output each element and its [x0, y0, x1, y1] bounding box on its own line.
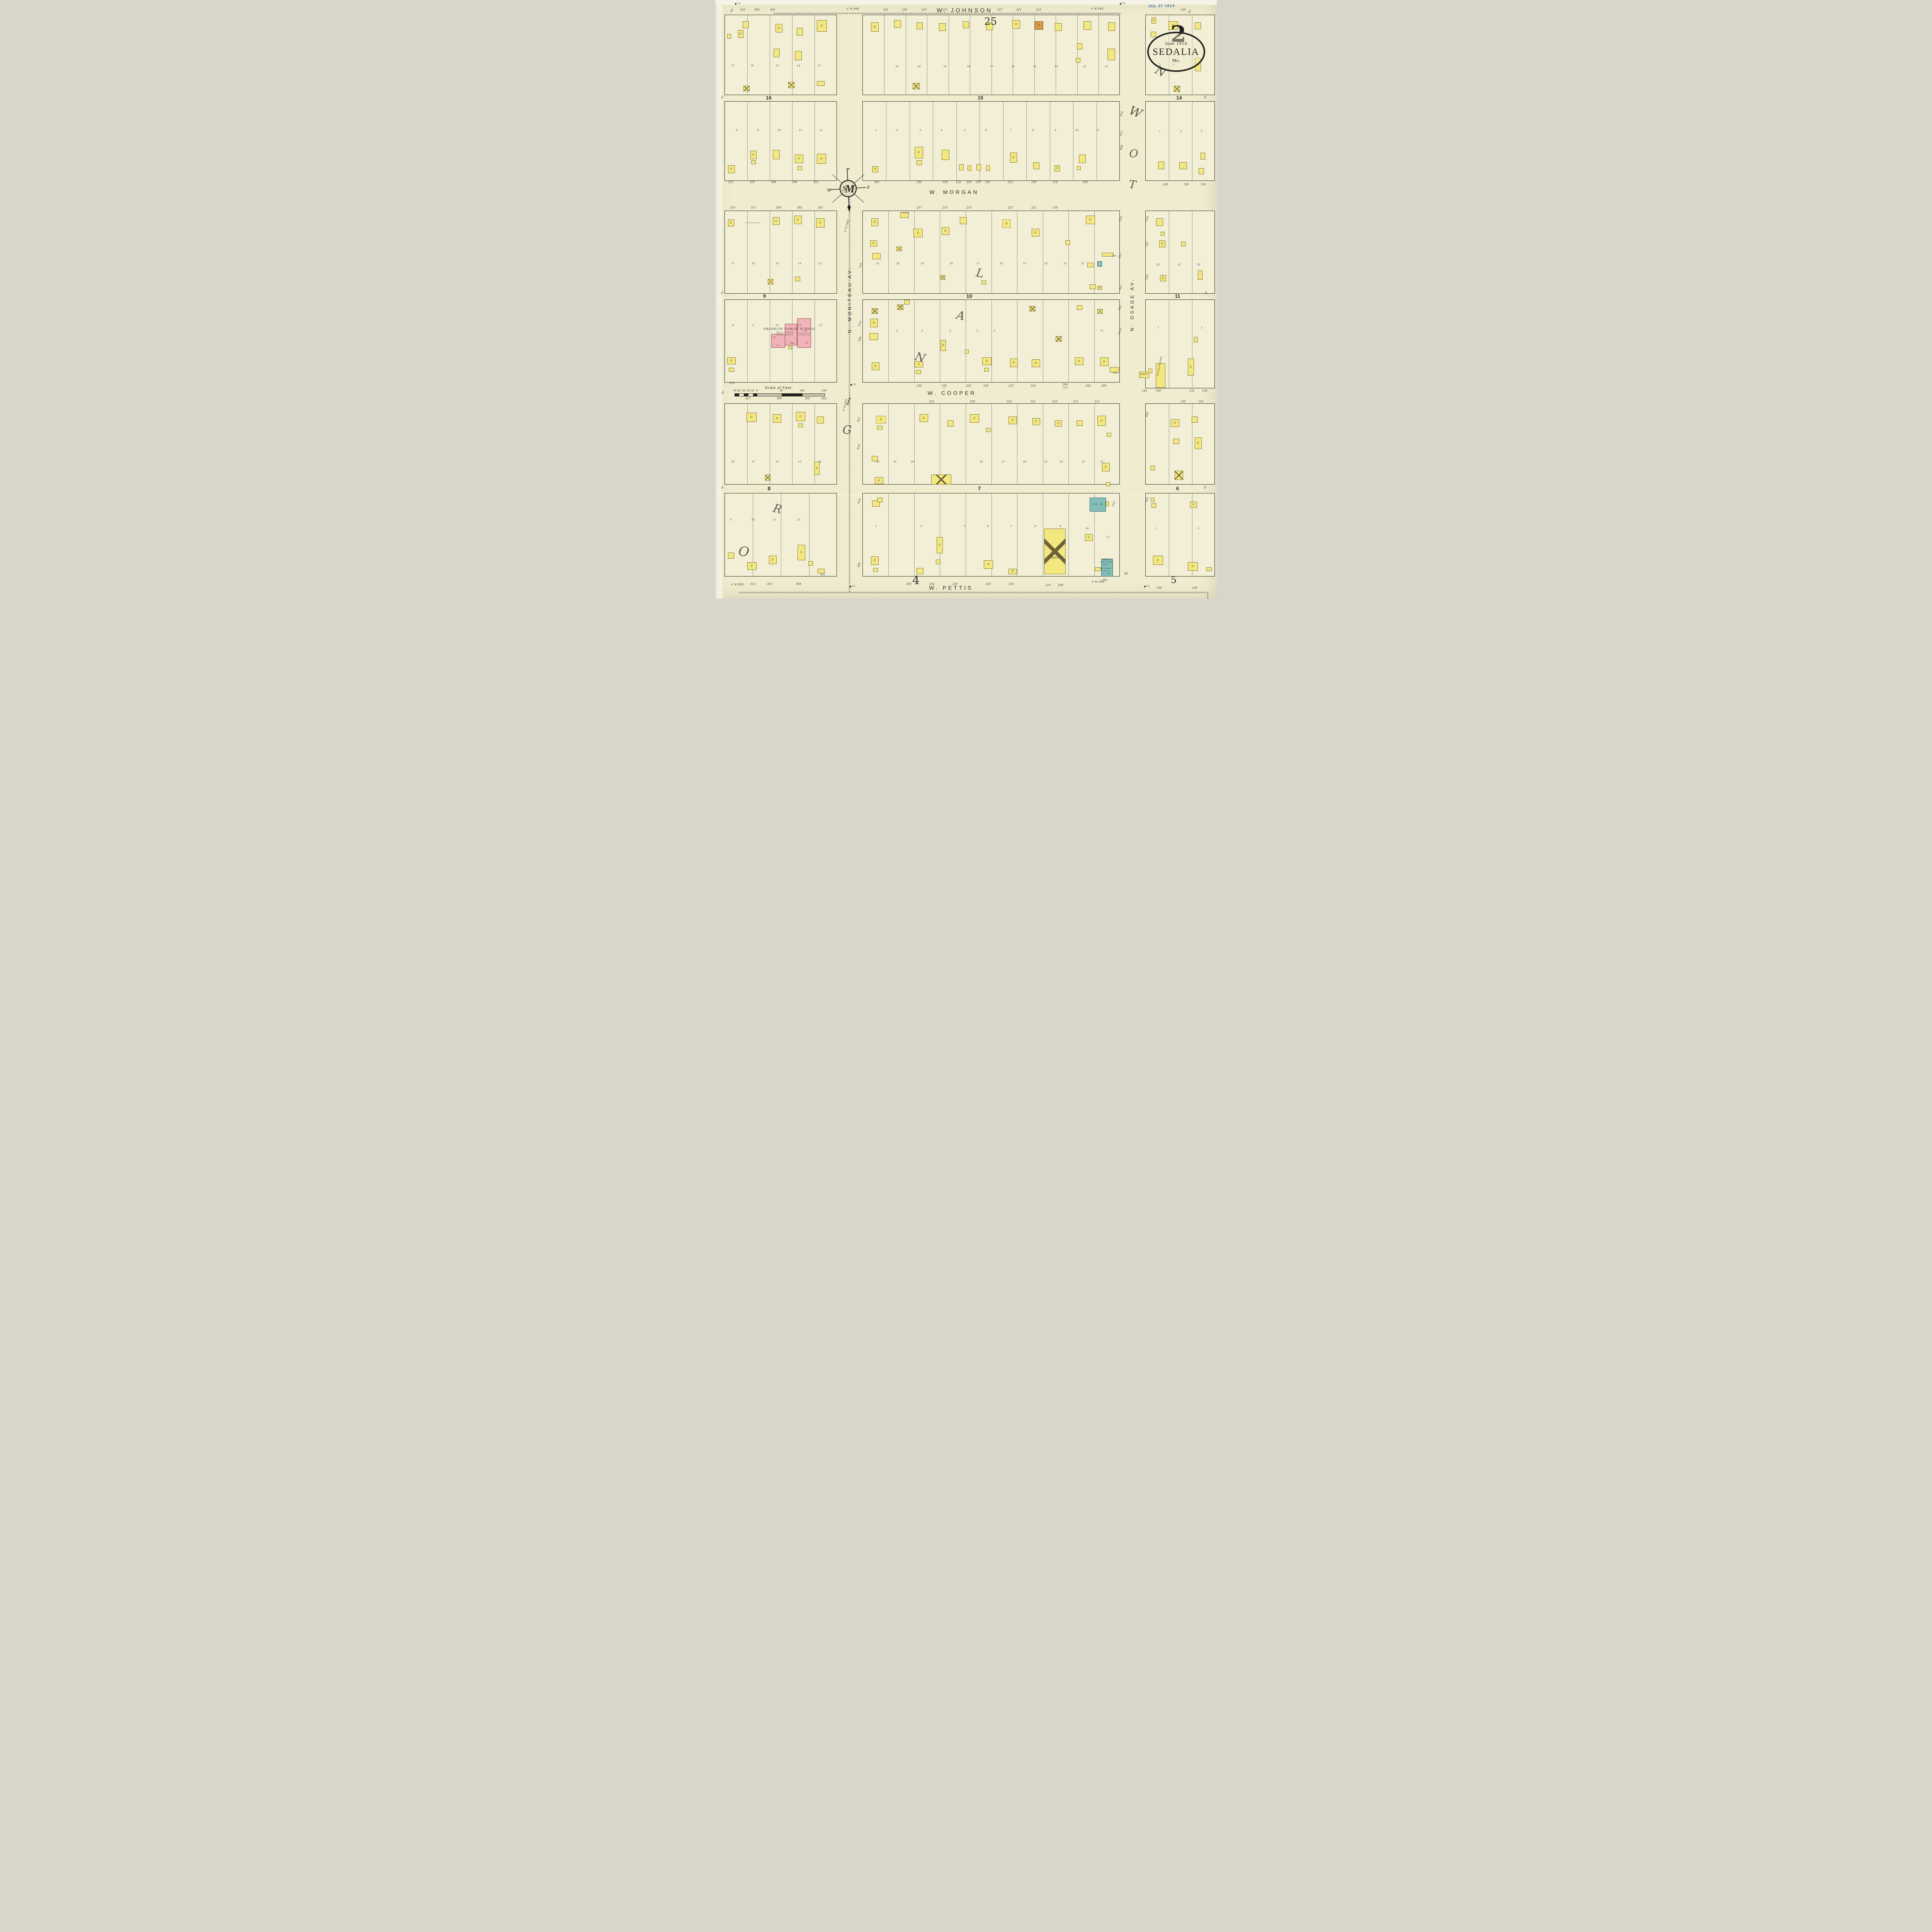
building-use-label: D — [1056, 167, 1058, 170]
building — [1151, 498, 1155, 502]
building — [728, 553, 734, 559]
hydrant-dot — [1120, 3, 1121, 5]
house-number: 239 — [902, 9, 907, 12]
school-label: 2B — [804, 331, 807, 333]
sanborn-map-sheet: DDDDDDDDDDDDDDDDDDDDDDDDDDDDDDDDDDDDDDDD… — [716, 0, 1217, 599]
lot-line — [992, 300, 992, 382]
building: D — [940, 340, 946, 351]
building-use-label: D — [873, 322, 875, 325]
building: D — [982, 357, 992, 365]
th-marker: T.H. — [852, 586, 855, 588]
lot-number: 5 — [964, 525, 965, 528]
poi-label: Lunch — [1140, 373, 1147, 376]
school-label: FRANKLIN PUBLIC SCHOOL — [764, 327, 816, 330]
block-number: 14 — [1176, 95, 1182, 100]
house-number: 304 — [796, 583, 801, 586]
lot-number: 7 — [1010, 129, 1012, 132]
house-number: 237 — [917, 207, 922, 209]
block-number: 6 — [1176, 486, 1179, 491]
building: D — [871, 218, 878, 226]
lot-line — [1043, 404, 1043, 484]
street-label: N. MONITEAU AV. — [847, 266, 852, 333]
lot-number: 16 — [1011, 65, 1014, 68]
house-number: 309 — [776, 207, 781, 209]
house-number: (210) — [1063, 387, 1068, 389]
water-pipe-line — [739, 592, 1206, 593]
house-number: 206 — [1083, 181, 1088, 184]
lot-line — [888, 404, 889, 484]
lot-line — [940, 404, 940, 484]
building: D — [747, 562, 757, 570]
building-use-label: D — [740, 33, 742, 36]
building — [1151, 503, 1156, 508]
building-use-label: D — [1088, 536, 1090, 539]
building — [817, 81, 825, 86]
building-use-label: D — [751, 565, 753, 568]
building-use-label: D — [1153, 19, 1155, 22]
poi-label: SALE — [1051, 557, 1059, 560]
house-number: 618 — [1119, 111, 1124, 117]
building: D — [796, 412, 805, 421]
building: D — [1100, 357, 1109, 366]
lot-line — [914, 211, 915, 293]
lot-number: 1 — [875, 129, 876, 132]
lot-number: 3 — [1197, 527, 1199, 530]
building — [1158, 162, 1164, 169]
poi-label: (C.B.) — [1103, 565, 1108, 566]
house-number: 229 — [970, 401, 975, 403]
house-number: 232 — [942, 385, 947, 388]
scale-segment — [782, 394, 803, 396]
block-outline — [862, 101, 1120, 181]
dimension-label: 60' — [730, 8, 734, 12]
building — [1106, 482, 1111, 486]
building: D — [1012, 20, 1020, 29]
lot-number: 17 — [1002, 461, 1005, 463]
house-number: 128 — [1202, 390, 1207, 393]
lot-number: 14 — [798, 262, 801, 265]
building — [1087, 263, 1094, 267]
building — [1056, 336, 1062, 342]
house-number: 204 — [1063, 384, 1068, 386]
lot-number: 14 — [1060, 461, 1063, 463]
building: D — [795, 155, 803, 163]
lot-number: 20 — [917, 65, 920, 68]
scale-tick: 10 — [751, 389, 754, 392]
building — [1097, 309, 1103, 314]
hydrant-dot — [735, 3, 736, 5]
building-use-label: D — [821, 25, 823, 27]
street-label: W. COOPER — [928, 390, 976, 396]
lot-number: 20 — [896, 262, 899, 265]
lot-number: 10 — [1085, 527, 1088, 530]
building — [872, 253, 881, 259]
house-number: 219 — [1052, 401, 1057, 403]
lot-line — [992, 404, 992, 484]
building: D — [814, 462, 820, 475]
lot-number: 21 — [1177, 264, 1180, 266]
lot-line — [815, 211, 815, 293]
building-use-label: D — [874, 365, 876, 368]
lot-number: 15 — [798, 461, 801, 463]
lot-line — [1017, 404, 1017, 484]
hydrant-dot — [850, 586, 851, 587]
building — [1195, 22, 1201, 29]
lot-number: 9 — [1060, 525, 1061, 528]
building-use-label: D — [987, 563, 989, 566]
scale-tick: 30 — [742, 389, 745, 392]
building: D — [769, 556, 777, 564]
building — [1198, 270, 1202, 280]
lot-number: 21 — [876, 262, 879, 265]
building — [936, 560, 940, 564]
poi-label: 25' — [1107, 573, 1110, 575]
building — [1179, 162, 1187, 169]
lot-number: 13 — [817, 65, 820, 67]
building — [798, 166, 802, 170]
school-label: 2B — [772, 337, 776, 339]
lot-number: 3 — [919, 129, 921, 132]
house-number: 136 — [1192, 587, 1197, 590]
lot-line — [1043, 493, 1043, 576]
block-number: 10 — [966, 293, 973, 299]
block-number: 9 — [763, 294, 766, 299]
building: D — [1055, 420, 1062, 427]
lot-line — [914, 404, 915, 484]
building: D — [872, 362, 879, 370]
house-number: 210 — [1046, 584, 1051, 587]
building: D — [1188, 359, 1194, 376]
lot-number: 12 — [1081, 262, 1084, 265]
house-number: 235 — [942, 207, 947, 209]
house-number: 139 — [1180, 401, 1185, 403]
lot-line — [1017, 493, 1017, 576]
building — [1029, 306, 1036, 311]
building-use-label: D — [1161, 243, 1163, 245]
house-number: 219 — [1053, 207, 1058, 209]
building-use-label: D — [1197, 442, 1199, 445]
house-number: 136 — [1201, 184, 1206, 186]
scale-tick: 150 — [821, 389, 826, 392]
lot-line — [966, 404, 966, 484]
lot-number: 3 — [920, 525, 922, 528]
pencil-letter: T — [1128, 179, 1136, 190]
house-number: 225 — [1016, 9, 1021, 12]
lot-line — [956, 102, 957, 180]
th-marker: T.H. — [853, 384, 856, 386]
lot-number: 18 — [731, 461, 734, 463]
block-outline — [724, 101, 837, 181]
house-number: 223 — [1007, 401, 1012, 403]
building: D — [1032, 359, 1040, 367]
building — [1055, 23, 1062, 31]
building: D — [1002, 219, 1011, 228]
lot-number: 18 — [967, 65, 970, 68]
building — [917, 568, 923, 574]
house-number: 140 — [1163, 184, 1168, 186]
building: D — [1032, 229, 1039, 236]
title-oval: June 1914 SEDALIA Mo. — [1147, 32, 1205, 72]
building — [976, 164, 981, 170]
lot-number: 17 — [976, 262, 980, 265]
lot-line — [815, 15, 815, 95]
school-label: 35' — [791, 343, 795, 345]
lot-number: 13 — [818, 262, 821, 265]
building — [968, 165, 971, 171]
building-use-label: D — [1103, 361, 1105, 363]
lot-number: 8 — [736, 129, 737, 132]
lot-number: 12 — [797, 519, 800, 521]
building — [797, 335, 811, 348]
street-label: W. PETTIS — [929, 585, 973, 590]
block-number: 11 — [1175, 294, 1180, 299]
pencil-letter: O — [737, 544, 750, 559]
lot-number: 17 — [731, 262, 734, 265]
lot-number: 12 — [819, 129, 822, 132]
building — [1077, 305, 1082, 310]
lot-number: 15 — [776, 65, 779, 67]
lot-line — [927, 15, 927, 95]
house-number: 218 — [1053, 181, 1058, 184]
lot-line — [888, 211, 889, 293]
scale-segment — [748, 394, 753, 396]
building-use-label: D — [730, 360, 732, 362]
building: D — [1171, 419, 1179, 427]
house-number: 227 — [997, 9, 1002, 12]
building-use-label: D — [752, 154, 754, 156]
building — [877, 426, 883, 430]
house-number: 319 — [740, 9, 745, 12]
building — [960, 217, 967, 224]
lot-line — [770, 15, 770, 95]
title-city: SEDALIA — [1153, 47, 1199, 58]
building-use-label: D — [1057, 422, 1059, 425]
lot-number: 2 — [896, 330, 898, 332]
lot-line — [1068, 404, 1069, 484]
house-number: 140 — [1156, 390, 1161, 393]
building-use-label: D — [1089, 219, 1091, 221]
building-use-label: D — [923, 417, 925, 420]
block-outline — [862, 211, 1120, 294]
building — [1077, 166, 1081, 170]
lot-number: 22 — [876, 461, 879, 463]
building: D — [871, 556, 879, 565]
lot-number: 13 — [1083, 65, 1086, 68]
house-number: 238 — [906, 583, 911, 586]
building — [774, 49, 780, 57]
poi-label: PRINTING — [1103, 559, 1111, 561]
building-use-label: D — [1015, 23, 1017, 26]
lot-number: 12 — [1105, 65, 1108, 68]
lot-number: 16 — [750, 65, 753, 67]
dimension-label: 20' — [1203, 485, 1207, 490]
house-number: 221 — [1031, 207, 1036, 209]
house-number: 200 — [1101, 385, 1106, 388]
building — [797, 28, 803, 36]
building-use-label: D — [1078, 360, 1080, 363]
lot-number: 16 — [776, 461, 779, 463]
lot-line — [966, 493, 966, 576]
building-use-label: D — [1012, 156, 1014, 159]
house-number: 144 — [1156, 587, 1162, 590]
building-use-label: D — [776, 417, 778, 420]
building — [917, 22, 923, 29]
block-number: 16 — [766, 95, 771, 100]
lot-line — [1099, 15, 1099, 95]
building: D — [738, 30, 743, 38]
house-number: 510 — [858, 321, 862, 327]
house-number: 218 — [1009, 583, 1014, 586]
building — [798, 423, 803, 427]
building-use-label: D — [986, 360, 988, 363]
building-use-label: D — [944, 230, 946, 233]
block-number: 7 — [978, 486, 981, 491]
lot-line — [792, 102, 793, 180]
building-use-label: D — [1105, 466, 1107, 469]
pipe-label: 4" W. PIPE — [731, 584, 743, 586]
building — [959, 164, 964, 170]
house-number: 301 — [818, 207, 823, 209]
paper-edge-left — [716, 0, 723, 599]
building-use-label: D — [1100, 420, 1102, 422]
lot-line — [1192, 404, 1192, 484]
paper-edge-top — [716, 0, 1217, 5]
lot-number: 10 — [751, 519, 754, 521]
house-number: 609 — [1119, 145, 1124, 151]
house-number: 215 — [1073, 401, 1078, 403]
lot-line — [886, 102, 886, 180]
building — [1181, 241, 1186, 246]
lot-line — [770, 300, 770, 382]
dimension-label: 20' — [1203, 95, 1207, 99]
poi-label: D. — [1100, 503, 1103, 506]
pipe-label: 4" W. PIPE — [1092, 581, 1104, 583]
lot-number: 16 — [1000, 262, 1003, 265]
building: D — [1151, 17, 1156, 24]
lot-number: 9 — [1054, 129, 1056, 132]
lot-number: 11 — [1096, 129, 1099, 132]
lot-number: 15 — [1023, 262, 1026, 265]
building — [795, 51, 802, 60]
lot-number: 1 — [1159, 130, 1160, 133]
building-use-label: D — [1157, 559, 1159, 562]
block-outline — [862, 403, 1120, 485]
lot-line — [1068, 300, 1069, 382]
lot-line — [1003, 102, 1003, 180]
building: D — [1032, 418, 1040, 425]
building — [768, 279, 773, 284]
building: D — [776, 24, 782, 32]
building-use-label: D — [750, 416, 752, 419]
lot-line — [1169, 211, 1169, 293]
building-use-label: D — [1034, 231, 1036, 234]
house-number: 132 — [1189, 390, 1194, 393]
poi-label: Gro. — [820, 574, 825, 576]
building-use-label: D — [973, 417, 975, 420]
building — [1150, 466, 1155, 470]
date-stamp: JUL 27 1914 — [1148, 4, 1175, 9]
building — [729, 368, 734, 372]
house-number: 224 — [983, 385, 988, 388]
lot-line — [1192, 102, 1192, 180]
scale-tick: 0 — [756, 389, 758, 392]
building-use-label: D — [874, 26, 876, 29]
building-use-label: D — [1035, 362, 1037, 365]
building-use-label: D — [1162, 277, 1164, 280]
building — [1108, 22, 1115, 31]
building: D — [816, 218, 825, 228]
lot-number: 15 — [1033, 65, 1036, 68]
house-number: 611 — [1119, 131, 1124, 136]
lot-number: 14 — [1054, 65, 1058, 68]
house-number: 142 — [1142, 390, 1147, 393]
lot-line — [1068, 493, 1069, 576]
building: D — [817, 20, 827, 32]
house-number: 308 — [771, 181, 776, 184]
house-number: 234 — [929, 583, 934, 586]
house-number: 306 — [792, 181, 797, 184]
building — [788, 82, 794, 88]
sheet-ref-number: 25 — [984, 17, 997, 27]
building: D — [1102, 463, 1110, 471]
lot-number: 13 — [1063, 262, 1066, 265]
building-use-label: D — [918, 151, 920, 154]
lot-number: 18 — [980, 461, 983, 463]
building — [1106, 502, 1109, 506]
lot-number: 5 — [964, 129, 965, 132]
lot-line — [747, 300, 748, 382]
lot-number: 4 — [949, 330, 951, 332]
hydrant-dot — [850, 384, 852, 386]
lot-number: 8 — [1032, 129, 1034, 132]
building — [1079, 155, 1086, 163]
house-number: 241 — [883, 9, 888, 12]
lot-number: 2 — [896, 129, 898, 132]
lot-line — [1043, 211, 1043, 293]
building — [1173, 439, 1179, 444]
building — [1107, 433, 1111, 437]
building — [942, 150, 949, 160]
poi-label: LODGE HALL-2° — [1100, 568, 1113, 569]
compass-west-label: W — [827, 188, 832, 193]
house-number: 309 — [754, 9, 759, 12]
building: D — [794, 216, 802, 224]
building — [1044, 529, 1066, 574]
building — [916, 370, 921, 374]
building — [808, 561, 813, 566]
house-number: 202 — [1086, 385, 1091, 388]
pencil-letter: W — [1127, 104, 1143, 120]
lot-number: 9 — [730, 519, 731, 521]
building: D — [1159, 240, 1165, 247]
building — [940, 275, 945, 280]
building — [788, 346, 792, 349]
house-number: 305 — [805, 398, 810, 400]
building-use-label: D — [917, 232, 919, 235]
building: D — [1075, 357, 1083, 365]
th-marker: T.H. — [1146, 586, 1150, 588]
lot-line — [970, 15, 970, 95]
building — [818, 569, 825, 573]
building — [939, 23, 946, 31]
lot-number: 15 — [1044, 461, 1047, 463]
lot-number: 1 — [1157, 327, 1159, 329]
building — [894, 20, 901, 28]
building: D — [915, 147, 923, 158]
building-use-label: D — [1005, 223, 1007, 225]
house-number: 208 — [1058, 584, 1063, 587]
building: D — [871, 22, 879, 32]
